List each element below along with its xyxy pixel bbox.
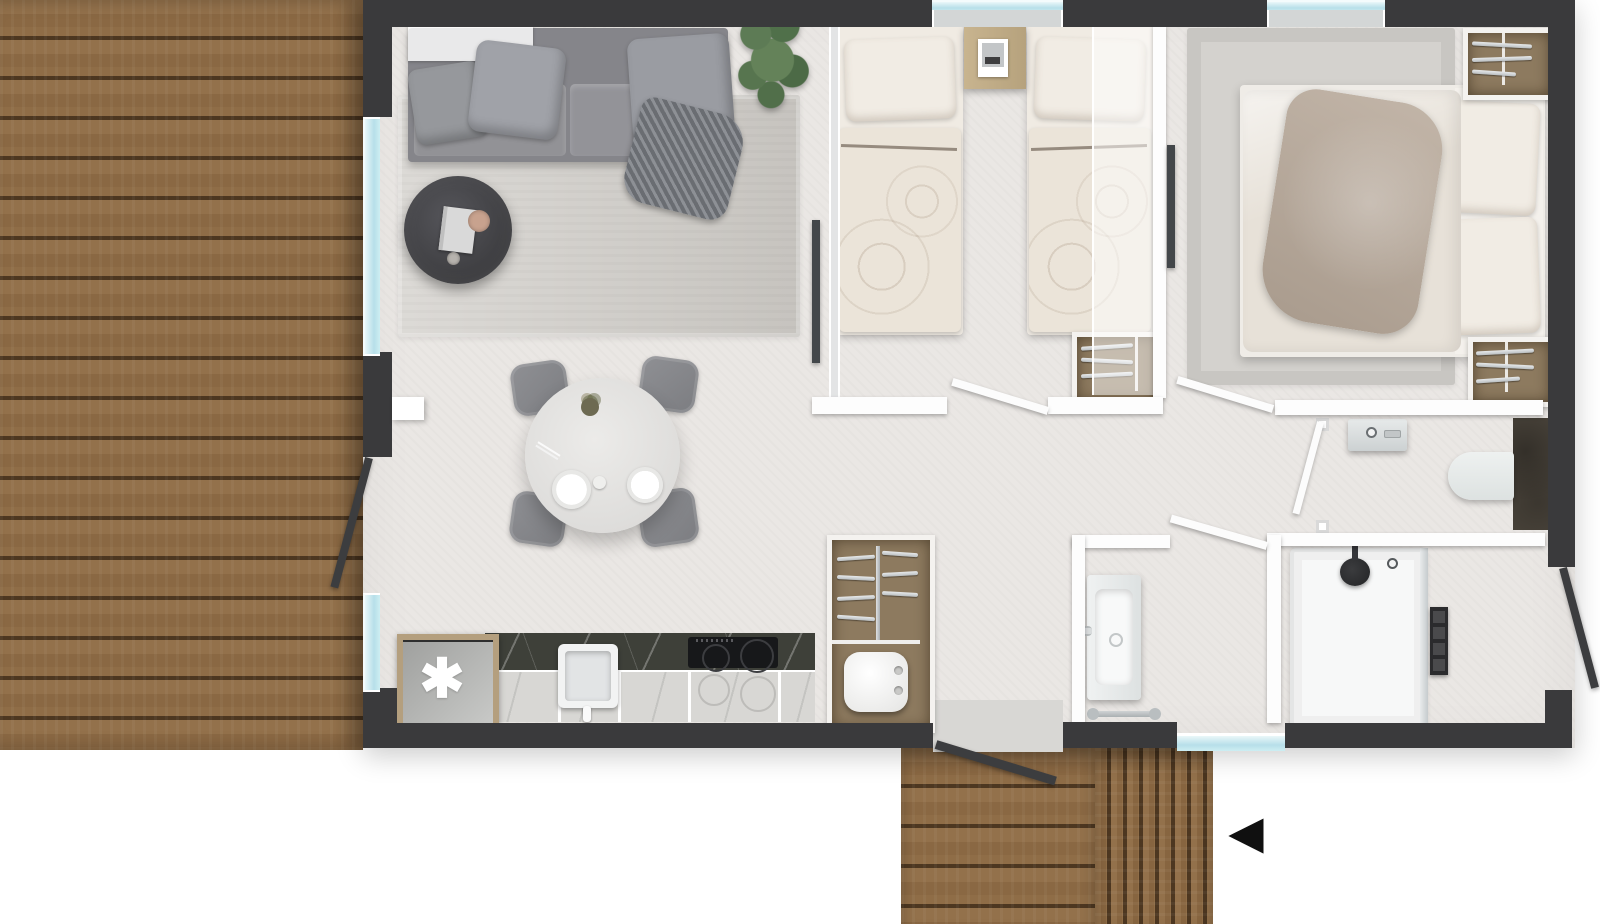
terrace-bottom-decking-horizontal (901, 748, 1095, 924)
wall-shelf (392, 397, 424, 420)
radiator-cell (1433, 659, 1445, 671)
wall-left-upper (363, 0, 392, 117)
bathroom-shower-wall (1267, 535, 1281, 723)
closet-rail (837, 615, 875, 622)
burner-ghost (698, 674, 730, 706)
radiator-cell (1433, 643, 1445, 655)
window-bottom-shower (1177, 733, 1285, 751)
closet-rail (837, 575, 875, 581)
bedrooms-partition-wall (1153, 25, 1166, 398)
burner (702, 644, 730, 672)
nightstand (964, 27, 1026, 89)
wall-bottom-right (1285, 723, 1572, 748)
basin-faucet-knob (1366, 427, 1377, 438)
heater-knob (894, 666, 903, 675)
wall-left-mid (363, 352, 392, 457)
sink-basin (565, 651, 611, 701)
heater-knob (894, 686, 903, 695)
radiator-cell (1433, 627, 1445, 639)
plate-1 (552, 470, 591, 509)
bathroom-top-wall-right (1267, 533, 1545, 546)
wall-right-upper (1548, 0, 1575, 567)
twin-bed-left-duvet (839, 128, 961, 332)
vanity-drain (1109, 633, 1123, 647)
double-room-wardrobe-top (1463, 28, 1555, 100)
window-sill (932, 10, 1063, 27)
shower-knob (1387, 558, 1398, 569)
hall-wall-center (1048, 397, 1163, 414)
terrace-bottom-decking-vertical (1095, 748, 1213, 924)
burner (740, 639, 774, 673)
hall-wall-under-twin-room (812, 397, 947, 414)
shower-glass-screen (1420, 548, 1428, 723)
heater-asterisk-symbol: ✱ (403, 640, 481, 716)
cabinet-divider (778, 670, 781, 722)
picture-subject (985, 57, 1000, 64)
kitchen-sink (558, 644, 618, 708)
sliding-door-bedroom2 (1167, 145, 1175, 268)
terrace-left-decking (0, 0, 363, 750)
cabinet-divider (618, 670, 621, 722)
small-cup (447, 252, 460, 265)
wardrobe-rail (1472, 69, 1516, 76)
wc-tiled-wall (1513, 418, 1548, 530)
window-left-kitchen (363, 593, 380, 692)
small-dish (468, 210, 490, 232)
window-sill (1267, 10, 1385, 27)
closet-rail (837, 555, 875, 562)
bathroom-top-wall-left (1072, 535, 1170, 548)
direction-arrow: ◀ (1222, 802, 1270, 862)
dining-table (525, 378, 680, 533)
window-left-living (363, 117, 380, 356)
flower-vase (581, 398, 599, 416)
sofa-cushion-2 (467, 39, 568, 141)
cooktop (688, 637, 778, 668)
frosted-sliding-panel (1092, 27, 1157, 395)
twin-bed-left-pillow (844, 36, 957, 122)
closet-rail (837, 595, 875, 601)
closet-rail (882, 591, 918, 597)
bathroom-vanity (1087, 575, 1141, 700)
towel-rail (1090, 711, 1158, 717)
utility-closet (827, 535, 935, 733)
shower-arm (1352, 546, 1358, 560)
wall-bottom-mid (1063, 722, 1177, 748)
table-cup (593, 476, 606, 489)
wall-right-corner (1545, 690, 1572, 748)
wardrobe-rail (1476, 376, 1520, 383)
plate-2 (627, 467, 663, 503)
picture-frame (978, 39, 1008, 77)
window-twin-bedroom (932, 0, 1063, 27)
towel-radiator (1430, 607, 1448, 675)
floor-plan-canvas: ✱ (0, 0, 1600, 924)
double-bed-pillow-2 (1449, 216, 1541, 335)
cooktop-controls (696, 639, 736, 642)
living-bedroom-glass-partition (829, 25, 840, 398)
soap-dish (1384, 430, 1401, 438)
sink-faucet (583, 706, 591, 722)
burner-ghost (740, 676, 776, 712)
heater-cabinet: ✱ (397, 634, 499, 734)
window-double-bedroom (1267, 0, 1385, 27)
toilet (1448, 452, 1514, 500)
closet-rail (882, 571, 918, 577)
wc-washbasin (1348, 419, 1407, 451)
double-room-wardrobe-bottom (1468, 337, 1555, 407)
wall-bottom-left (363, 723, 933, 748)
bathroom-left-wall (1072, 535, 1085, 723)
closet-rail (882, 551, 918, 558)
water-heater (844, 652, 908, 712)
towel-rail-end (1149, 708, 1161, 720)
radiator-cell (1433, 611, 1445, 623)
sliding-door-living (812, 220, 820, 363)
wc-top-wall (1275, 400, 1543, 415)
cabinet-divider (688, 670, 691, 722)
closet-shelf-divider (832, 640, 920, 644)
shower-head (1340, 558, 1370, 586)
towel-rail-end (1087, 708, 1099, 720)
closet-pole (876, 546, 880, 640)
wc-door-pivot (1316, 520, 1329, 533)
